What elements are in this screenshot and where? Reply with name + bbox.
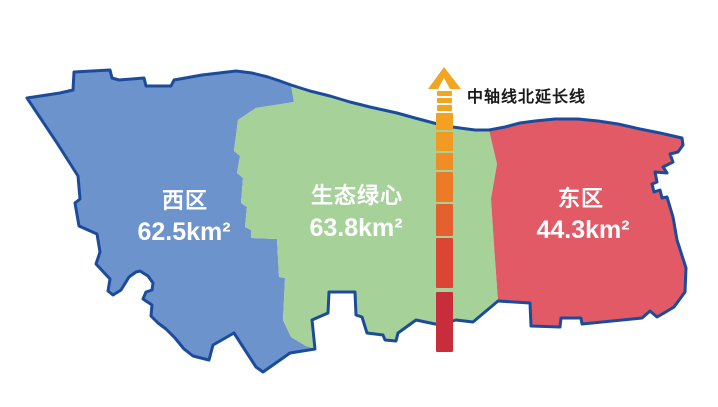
axis-segment: [436, 132, 453, 151]
axis-segment: [436, 238, 453, 288]
axis-segment: [436, 172, 453, 202]
east-area-label: 44.3km²: [536, 216, 629, 244]
axis-segment: [436, 204, 453, 236]
west-name-label: 西区: [162, 188, 208, 213]
center-name-label: 生态绿心: [311, 183, 403, 208]
axis-dash: [437, 105, 452, 111]
north-arrow-icon: [428, 67, 461, 89]
axis-label: 中轴线北延长线: [467, 87, 586, 106]
west-area-label: 62.5km²: [137, 218, 230, 246]
district-map: 中轴线北延长线 西区 62.5km² 生态绿心 63.8km² 东区 44.3k…: [0, 0, 718, 407]
axis-segment: [436, 113, 453, 130]
axis-segment: [436, 292, 453, 352]
map-svg: 中轴线北延长线 西区 62.5km² 生态绿心 63.8km² 东区 44.3k…: [0, 0, 718, 407]
axis-dash: [437, 98, 452, 103]
axis-dash: [437, 91, 452, 96]
axis-segment: [436, 153, 453, 170]
center-area-label: 63.8km²: [309, 214, 402, 242]
east-name-label: 东区: [558, 186, 604, 211]
